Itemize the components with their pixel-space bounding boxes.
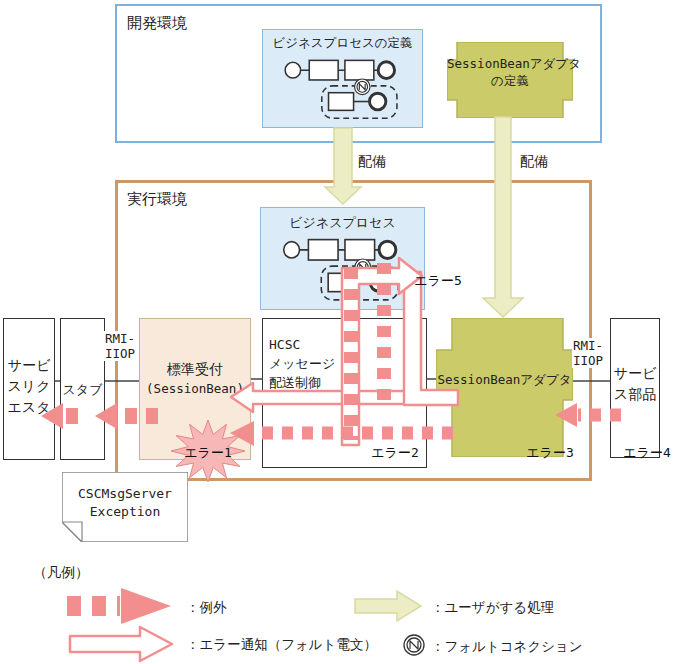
- stub-label: スタブ: [61, 379, 104, 400]
- rmi-iiop-label-left: RMI- IIOP: [104, 331, 136, 361]
- business-process-flow-icon: [263, 30, 422, 127]
- development-environment-label: 開発環境: [127, 14, 187, 32]
- hcsc-message-delivery-label: HCSC メッセージ 配送制御: [269, 335, 335, 392]
- activity-node-icon: [345, 240, 375, 260]
- service-requester-label: サービ スリク エスタ: [4, 355, 54, 418]
- error-2-label: エラー2: [365, 444, 425, 462]
- error-flow-diagram: 開発環境 ビジネスプロセスの定義 SessionBeanアダプタ の定義 配備 …: [0, 0, 687, 664]
- business-process-definition-box: ビジネスプロセスの定義: [262, 29, 423, 128]
- legend-title: （凡例）: [33, 564, 89, 581]
- fault-end-node-icon: [370, 274, 387, 291]
- error-4-label: エラー4: [617, 444, 677, 462]
- execution-environment-label: 実行環境: [127, 190, 187, 208]
- activity-node-icon: [308, 240, 338, 260]
- start-node-icon: [285, 62, 300, 78]
- rmi-iiop-label-right: RMI- IIOP: [572, 338, 604, 368]
- standard-reception-sublabel: (SessionBean): [140, 381, 250, 396]
- error-1-label: エラー1: [178, 444, 238, 462]
- user-process-arrow-icon: [355, 591, 421, 621]
- fault-activity-icon: [329, 93, 354, 111]
- error-3-label: エラー3: [520, 444, 580, 462]
- activity-node-icon: [309, 60, 338, 80]
- exception-note-text: CSCMsgServer Exception: [62, 485, 188, 521]
- end-node-icon: [379, 241, 396, 258]
- fault-connection-icon: [404, 635, 424, 655]
- folded-corner-icon: [62, 522, 82, 542]
- deploy-label-1: 配備: [358, 153, 386, 170]
- legend-exception-label: ：例外: [186, 599, 227, 615]
- end-node-icon: [378, 62, 394, 79]
- fault-activity-icon: [328, 273, 354, 291]
- deploy-label-2: 配備: [520, 153, 548, 170]
- legend-error-notice-label: ：エラー通知（フォルト電文）: [186, 636, 377, 652]
- activity-node-icon: [345, 60, 374, 80]
- error-5-label: エラー5: [408, 272, 468, 290]
- legend-fault-connection-label: ：フォルトコネクション: [431, 638, 583, 654]
- standard-reception-box: 標準受付 (SessionBean): [139, 318, 251, 460]
- fault-message-arrow-icon: [70, 627, 172, 661]
- business-process-flow-icon: [261, 208, 424, 309]
- exception-arrowhead-icon: [121, 588, 171, 624]
- standard-reception-label: 標準受付: [140, 361, 250, 378]
- start-node-icon: [284, 242, 300, 258]
- sessionbean-adapter-label: SessionBeanアダプタ: [436, 371, 573, 388]
- stub-box: スタブ: [60, 318, 105, 460]
- service-requester-box: サービ スリク エスタ: [3, 318, 55, 460]
- business-process-box: ビジネスプロセス: [260, 207, 425, 310]
- service-part-label: サービ ス部品: [611, 363, 659, 405]
- legend-user-process-label: ：ユーザがする処理: [431, 599, 554, 615]
- service-part-box: サービ ス部品: [610, 318, 660, 458]
- sessionbean-adapter-definition-label: SessionBeanアダプタ の定義: [447, 55, 573, 89]
- fault-end-node-icon: [369, 93, 385, 110]
